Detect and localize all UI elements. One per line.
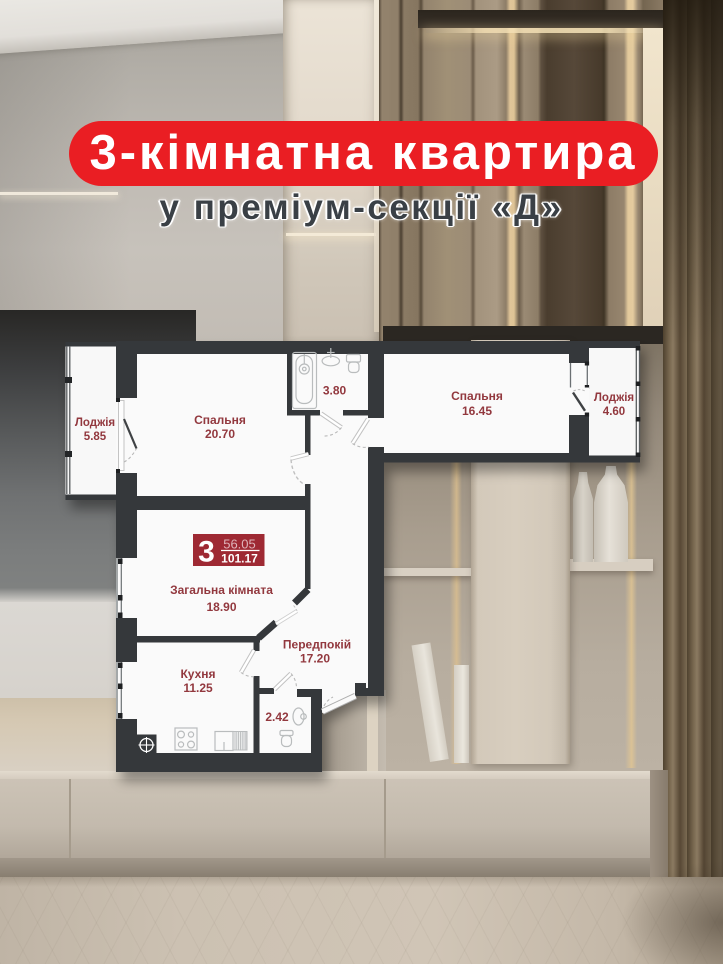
svg-text:3.80: 3.80: [323, 384, 347, 398]
svg-text:11.25: 11.25: [183, 681, 213, 695]
svg-text:17.20: 17.20: [300, 652, 330, 666]
svg-text:Загальна кімната: Загальна кімната: [170, 583, 273, 597]
svg-text:Лоджія: Лоджія: [594, 392, 634, 404]
svg-text:Кухня: Кухня: [180, 667, 215, 681]
svg-text:101.17: 101.17: [221, 552, 258, 566]
svg-text:2.42: 2.42: [265, 710, 289, 724]
svg-text:5.85: 5.85: [84, 431, 107, 443]
svg-text:Спальня: Спальня: [194, 413, 246, 427]
svg-text:4.60: 4.60: [603, 406, 625, 418]
svg-text:16.45: 16.45: [462, 404, 492, 418]
svg-text:18.90: 18.90: [206, 600, 236, 614]
svg-text:Спальня: Спальня: [451, 389, 503, 403]
svg-text:56.05: 56.05: [223, 537, 256, 552]
svg-text:20.70: 20.70: [205, 427, 235, 441]
svg-text:3: 3: [198, 536, 215, 569]
svg-text:Передпокій: Передпокій: [283, 638, 351, 652]
svg-text:Лоджія: Лоджія: [75, 417, 115, 429]
